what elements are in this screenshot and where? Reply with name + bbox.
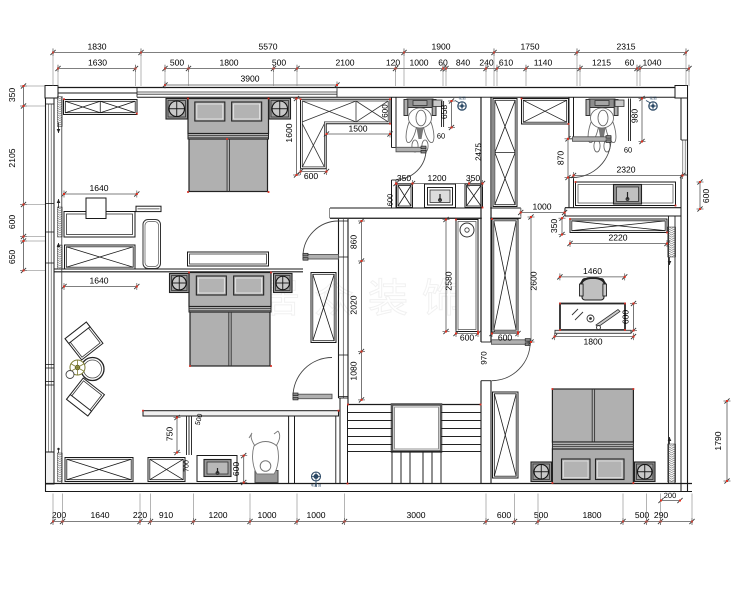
svg-text:600: 600 xyxy=(497,510,512,520)
svg-text:500: 500 xyxy=(170,58,185,68)
svg-text:2320: 2320 xyxy=(616,165,635,175)
svg-text:600: 600 xyxy=(460,333,475,343)
svg-text:1900: 1900 xyxy=(431,41,450,51)
svg-text:700: 700 xyxy=(184,460,191,472)
svg-text:200: 200 xyxy=(664,491,677,500)
svg-text:350: 350 xyxy=(466,173,481,183)
svg-text:60: 60 xyxy=(625,58,635,68)
svg-text:1080: 1080 xyxy=(349,361,359,380)
svg-text:1800: 1800 xyxy=(219,58,238,68)
svg-text:500: 500 xyxy=(635,510,650,520)
svg-text:2020: 2020 xyxy=(349,295,359,314)
svg-text:地漏 回: 地漏 回 xyxy=(311,484,321,488)
svg-text:1140: 1140 xyxy=(534,58,553,68)
svg-text:1800: 1800 xyxy=(582,510,601,520)
svg-text:600: 600 xyxy=(304,171,319,181)
svg-text:240: 240 xyxy=(479,58,494,68)
svg-text:2475: 2475 xyxy=(474,143,483,161)
svg-text:600: 600 xyxy=(386,194,395,207)
svg-text:980: 980 xyxy=(630,109,640,124)
svg-text:750: 750 xyxy=(165,427,175,442)
svg-text:2580: 2580 xyxy=(444,271,454,290)
svg-text:600: 600 xyxy=(621,310,631,325)
svg-text:3000: 3000 xyxy=(406,510,425,520)
svg-text:350: 350 xyxy=(7,88,17,103)
svg-text:2105: 2105 xyxy=(7,148,17,167)
svg-text:1630: 1630 xyxy=(88,58,107,68)
svg-text:1200: 1200 xyxy=(208,510,227,520)
svg-text:970: 970 xyxy=(480,351,489,365)
svg-text:1000: 1000 xyxy=(532,202,551,212)
svg-text:1000: 1000 xyxy=(306,510,325,520)
svg-text:花洒: 花洒 xyxy=(650,97,658,101)
svg-text:5570: 5570 xyxy=(258,41,277,51)
svg-text:1215: 1215 xyxy=(592,58,611,68)
svg-text:1460: 1460 xyxy=(583,266,602,276)
svg-text:600: 600 xyxy=(701,189,711,204)
svg-text:600: 600 xyxy=(7,215,17,230)
svg-text:870: 870 xyxy=(556,151,566,166)
svg-text:1600: 1600 xyxy=(284,123,294,142)
svg-text:600: 600 xyxy=(381,104,390,118)
svg-text:3900: 3900 xyxy=(240,74,259,84)
svg-text:1640: 1640 xyxy=(89,275,108,285)
svg-text:600: 600 xyxy=(231,462,241,477)
svg-text:600: 600 xyxy=(498,333,513,343)
svg-text:658: 658 xyxy=(439,105,449,120)
svg-text:60: 60 xyxy=(437,132,445,141)
svg-text:350: 350 xyxy=(397,173,412,183)
svg-text:2100: 2100 xyxy=(335,58,354,68)
svg-text:290: 290 xyxy=(654,510,669,520)
svg-text:200: 200 xyxy=(52,510,67,520)
svg-text:500: 500 xyxy=(272,58,287,68)
svg-text:1800: 1800 xyxy=(583,337,602,347)
svg-text:500: 500 xyxy=(534,510,549,520)
svg-text:2600: 2600 xyxy=(529,271,539,290)
svg-text:860: 860 xyxy=(349,235,359,250)
svg-text:1640: 1640 xyxy=(89,183,108,193)
svg-text:1000: 1000 xyxy=(409,58,428,68)
svg-text:1750: 1750 xyxy=(520,41,539,51)
svg-text:120: 120 xyxy=(386,58,401,68)
svg-text:910: 910 xyxy=(159,510,174,520)
svg-text:60: 60 xyxy=(624,146,632,155)
svg-text:610: 610 xyxy=(499,58,514,68)
svg-text:1500: 1500 xyxy=(348,124,367,134)
svg-text:1040: 1040 xyxy=(642,58,661,68)
svg-text:350: 350 xyxy=(549,219,559,234)
svg-text:1640: 1640 xyxy=(90,510,109,520)
svg-text:2220: 2220 xyxy=(608,233,627,243)
svg-text:1000: 1000 xyxy=(257,510,276,520)
svg-text:1790: 1790 xyxy=(713,431,723,450)
svg-text:650: 650 xyxy=(7,250,17,265)
svg-text:1830: 1830 xyxy=(87,41,106,51)
svg-text:840: 840 xyxy=(456,58,471,68)
svg-text:2315: 2315 xyxy=(616,41,635,51)
svg-text:1200: 1200 xyxy=(427,173,446,183)
svg-text:花洒: 花洒 xyxy=(459,97,467,101)
